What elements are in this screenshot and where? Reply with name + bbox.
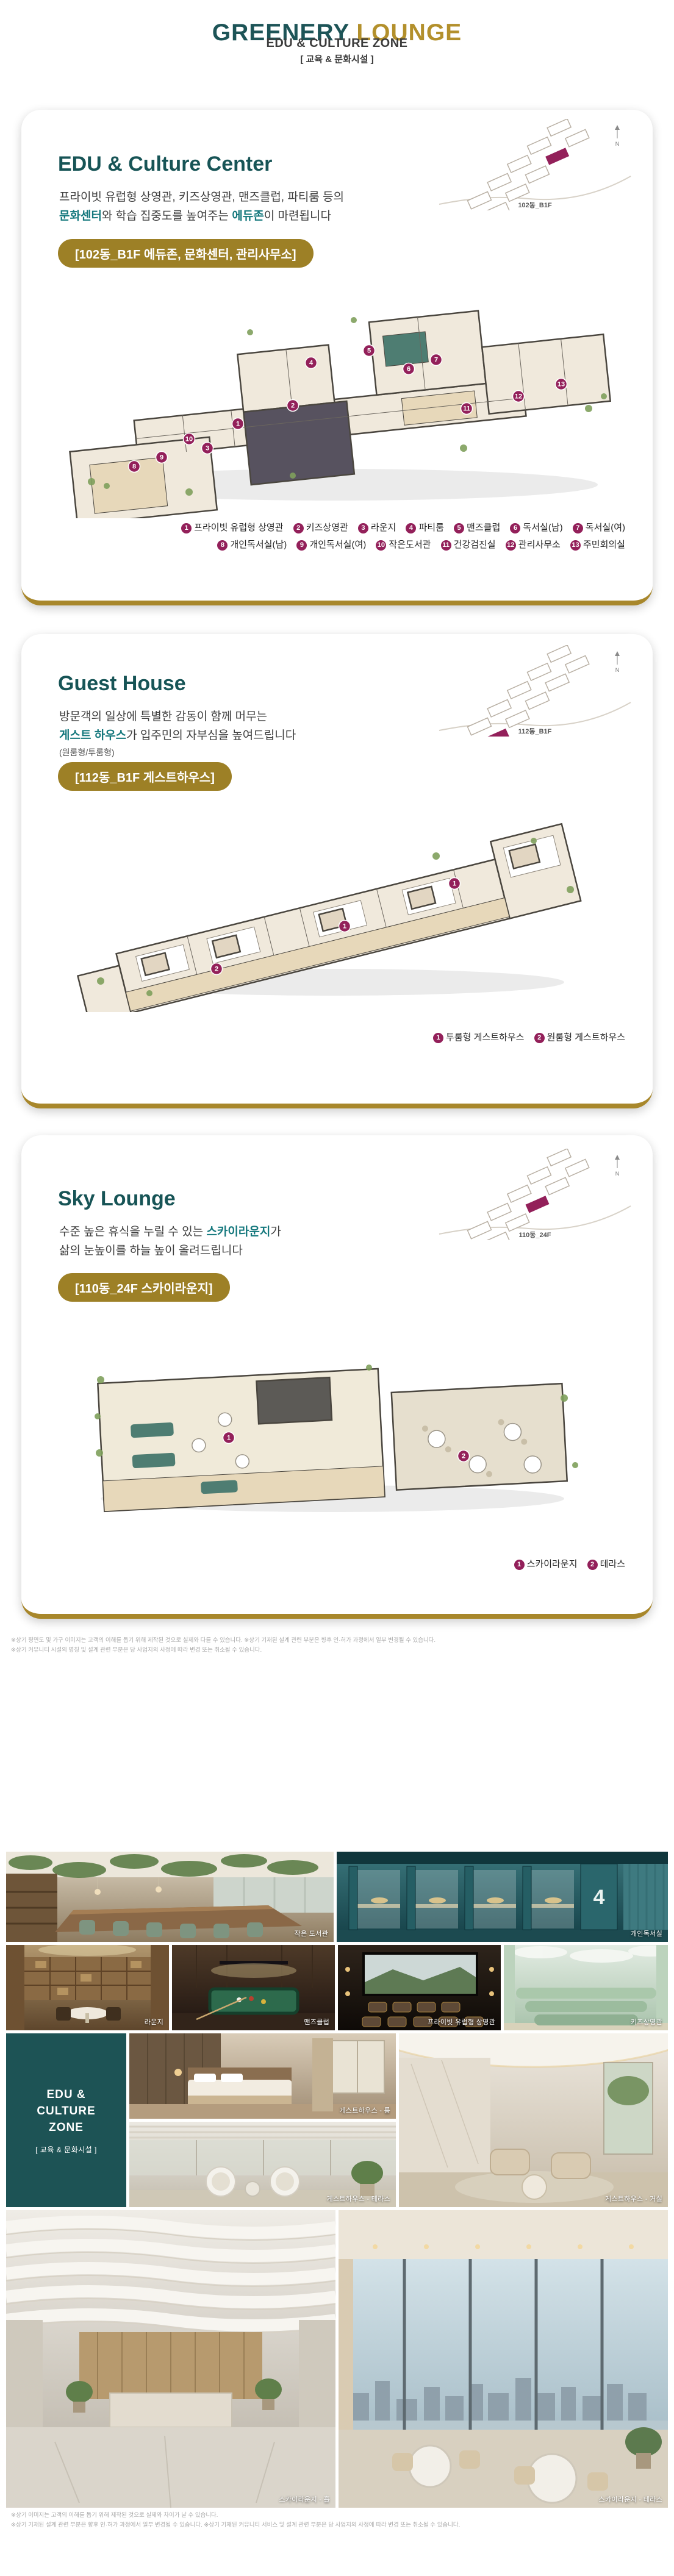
legend-label: 원룸형 게스트하우스 — [547, 1032, 625, 1043]
legend-number: 2 — [534, 1033, 545, 1043]
card-description: 방문객의 일상에 특별한 감동이 함께 머무는 게스트 하우스가 입주민의 자부… — [59, 707, 296, 745]
legend-number: 8 — [217, 540, 228, 551]
card-description: 수준 높은 휴식을 누릴 수 있는 스카이라운지가 삶의 눈높이를 하늘 높이 … — [59, 1222, 281, 1260]
photo-caption: 게스트하우스 - 룸 — [339, 2105, 390, 2115]
legend-label: 파티룸 — [418, 523, 443, 533]
svg-text:2: 2 — [291, 402, 295, 410]
minimap-label: 112동_B1F — [518, 727, 552, 735]
brand-line: EDU & — [46, 2086, 85, 2103]
desc-highlight: 에듀존 — [232, 210, 264, 223]
site-minimap: N 110동_24F — [434, 1149, 636, 1240]
photo-skylounge-terrace: 스카이라운지 - 테라스 — [339, 2210, 668, 2508]
desc-text: 이 마련됩니다 — [264, 210, 331, 223]
legend-number: 1 — [181, 523, 192, 533]
photo-caption: 작은 도서관 — [295, 1928, 328, 1938]
desc-highlight: 게스트 하우스 — [59, 729, 126, 742]
compass-label: N — [615, 141, 620, 147]
floor-plan-edu-culture: 1 2 3 4 5 6 7 8 9 10 11 12 13 — [37, 265, 637, 518]
compass-label: N — [615, 667, 620, 673]
legend-number: 4 — [406, 523, 416, 533]
svg-text:7: 7 — [434, 357, 438, 364]
svg-text:10: 10 — [185, 436, 193, 443]
legend-line: 1프라이빗 유럽형 상영관 2키즈상영관 3라운지 4파티룸 5맨즈클럽 6독서… — [174, 519, 625, 537]
plan-legend: 1스카이라운지 2테라스 — [507, 1556, 625, 1573]
highlighted-building — [545, 148, 569, 165]
svg-text:2: 2 — [462, 1453, 465, 1460]
location-badge: [110동_24F 스카이라운지] — [58, 1273, 230, 1302]
svg-text:1: 1 — [453, 880, 456, 888]
greenery-lounge-page: GREENERY LOUNGE EDU & CULTURE ZONE [ 교육 … — [0, 0, 674, 2576]
legend-number: 5 — [454, 523, 464, 533]
legend-label: 주민회의실 — [583, 540, 625, 550]
photo-private-cinema: 프라이빗 유럽형 상영관 — [338, 1945, 501, 2030]
legend-number: 9 — [296, 540, 307, 551]
legend-label: 스카이라운지 — [527, 1559, 578, 1569]
photo-guesthouse-terrace: 게스트하우스 - 테라스 — [129, 2122, 396, 2207]
legend-number: 7 — [573, 523, 583, 533]
disclaimer-top: ※상기 평면도 및 가구 이미지는 고객의 이해를 돕기 위해 제작된 것으로 … — [11, 1636, 665, 1655]
photo-caption: 맨즈클럽 — [304, 2017, 329, 2027]
photo-private-study-room: 4 개인독서실 — [337, 1852, 668, 1942]
photo-caption: 스카이라운지 - 테라스 — [599, 2494, 662, 2504]
svg-text:1: 1 — [343, 923, 346, 930]
disclaimer-line: ※상기 이미지는 고객의 이해를 돕기 위해 제작된 것으로 실제와 차이가 날… — [11, 2511, 665, 2521]
photo-caption: 스카이라운지 - 홀 — [279, 2494, 330, 2504]
legend-label: 관리사무소 — [518, 540, 561, 550]
floor-plan-sky-lounge: 1 2 — [64, 1312, 601, 1527]
card-note: (원룸형/투룸형) — [59, 746, 115, 758]
desc-text: 수준 높은 휴식을 누릴 수 있는 — [59, 1226, 206, 1238]
photo-caption: 개인독서실 — [631, 1928, 662, 1938]
photo-lounge: 라운지 — [6, 1945, 169, 2030]
location-badge: [112동_B1F 게스트하우스] — [58, 762, 232, 791]
plan-legend: 1프라이빗 유럽형 상영관 2키즈상영관 3라운지 4파티룸 5맨즈클럽 6독서… — [174, 519, 625, 554]
legend-number: 1 — [514, 1560, 525, 1570]
desc-text: 방문객의 일상에 특별한 감동이 함께 머무는 — [59, 710, 267, 723]
legend-number: 2 — [293, 523, 304, 533]
brand-line: CULTURE — [37, 2103, 95, 2119]
photo-guesthouse-living-room: 게스트하우스 - 거실 — [399, 2033, 668, 2207]
photo-mens-club: 맨즈클럽 — [172, 1945, 335, 2030]
legend-label: 테라스 — [600, 1559, 625, 1569]
card-title: Guest House — [58, 672, 186, 696]
desc-highlight: 스카이라운지 — [206, 1226, 270, 1238]
desc-text: 와 학습 집중도를 높여주는 — [102, 210, 232, 223]
desc-highlight: 문화센터 — [59, 210, 102, 223]
legend-label: 투룸형 게스트하우스 — [446, 1032, 524, 1043]
disclaimer-bottom: ※상기 이미지는 고객의 이해를 돕기 위해 제작된 것으로 실제와 차이가 날… — [11, 2511, 665, 2530]
card-title: Sky Lounge — [58, 1187, 176, 1211]
minimap-label: 102동_B1F — [518, 201, 552, 209]
legend-number: 10 — [376, 540, 386, 551]
plan-legend: 1투룸형 게스트하우스 2원룸형 게스트하우스 — [426, 1029, 625, 1046]
disclaimer-line: ※상기 기재된 설계 관련 부분은 향후 인·허가 과정에서 일부 변경될 수 … — [11, 2521, 665, 2530]
legend-label: 라운지 — [371, 523, 396, 533]
site-minimap: N 102동_B1F — [434, 119, 636, 210]
brand-subline: [ 교육 & 문화시설 ] — [35, 2144, 97, 2155]
legend-label: 개인독서실(여) — [309, 540, 366, 550]
svg-text:1: 1 — [227, 1435, 231, 1442]
svg-text:9: 9 — [160, 454, 163, 462]
photo-skylounge-hall: 스카이라운지 - 홀 — [6, 2210, 335, 2508]
highlighted-building — [486, 729, 509, 737]
photo-kids-cinema: 키즈상영관 — [504, 1945, 668, 2030]
brand-box: EDU & CULTURE ZONE [ 교육 & 문화시설 ] — [6, 2033, 126, 2207]
svg-text:3: 3 — [206, 445, 209, 452]
legend-number: 13 — [570, 540, 581, 551]
svg-text:13: 13 — [557, 381, 565, 388]
svg-text:2: 2 — [215, 966, 218, 973]
svg-text:1: 1 — [236, 421, 240, 428]
legend-label: 건강검진실 — [454, 540, 496, 550]
compass-icon — [615, 125, 620, 138]
legend-label: 맨즈클럽 — [467, 523, 500, 533]
photo-caption: 프라이빗 유럽형 상영관 — [428, 2017, 495, 2027]
legend-label: 프라이빗 유럽형 상영관 — [194, 523, 283, 533]
svg-text:11: 11 — [463, 405, 470, 413]
photo-caption: 게스트하우스 - 테라스 — [327, 2194, 390, 2203]
legend-label: 키즈상영관 — [306, 523, 348, 533]
brand-line: ZONE — [49, 2119, 84, 2136]
photo-caption: 게스트하우스 - 거실 — [605, 2194, 662, 2203]
legend-line: 8개인독서실(남) 9개인독서실(여) 10작은도서관 11건강검진실 12관리… — [174, 537, 625, 554]
legend-label: 독서실(남) — [523, 523, 562, 533]
legend-line: 1투룸형 게스트하우스 2원룸형 게스트하우스 — [426, 1029, 625, 1046]
legend-number: 12 — [506, 540, 516, 551]
site-minimap: N 112동_B1F — [434, 645, 636, 737]
card-sky-lounge: Sky Lounge 수준 높은 휴식을 누릴 수 있는 스카이라운지가 삶의 … — [21, 1135, 653, 1619]
legend-label: 작은도서관 — [389, 540, 431, 550]
photo-caption: 라운지 — [145, 2017, 163, 2027]
disclaimer-line: ※상기 평면도 및 가구 이미지는 고객의 이해를 돕기 위해 제작된 것으로 … — [11, 1636, 665, 1646]
card-edu-culture-center: EDU & Culture Center 프라이빗 유럽형 상영관, 키즈상영관… — [21, 110, 653, 605]
disclaimer-line: ※상기 커뮤니티 시설의 명칭 및 설계 관련 부분은 당 사업지의 사정에 따… — [11, 1646, 665, 1655]
legend-number: 11 — [441, 540, 451, 551]
svg-text:8: 8 — [132, 463, 136, 471]
legend-label: 독서실(여) — [586, 523, 625, 533]
desc-text: 삶의 눈높이를 하늘 높이 올려드립니다 — [59, 1244, 243, 1257]
legend-number: 3 — [358, 523, 368, 533]
card-description: 프라이빗 유럽형 상영관, 키즈상영관, 맨즈클럽, 파티룸 등의 문화센터와 … — [59, 188, 344, 226]
highlighted-building — [525, 1196, 549, 1213]
legend-number: 6 — [510, 523, 520, 533]
desc-text: 프라이빗 유럽형 상영관, 키즈상영관, 맨즈클럽, 파티룸 등의 — [59, 191, 344, 204]
minimap-label: 110동_24F — [519, 1231, 551, 1239]
legend-line: 1스카이라운지 2테라스 — [507, 1556, 625, 1573]
svg-text:12: 12 — [515, 393, 522, 401]
desc-text: 가 — [270, 1226, 281, 1238]
compass-icon — [615, 1155, 620, 1168]
card-title: EDU & Culture Center — [58, 152, 272, 176]
card-guest-house: Guest House 방문객의 일상에 특별한 감동이 함께 머무는 게스트 … — [21, 634, 653, 1108]
legend-number: 2 — [587, 1560, 598, 1570]
legend-number: 1 — [433, 1033, 443, 1043]
floor-plan-guest-house: 2 1 1 — [58, 797, 607, 1012]
compass-label: N — [615, 1171, 620, 1177]
photo-small-library: 작은 도서관 — [6, 1852, 334, 1942]
desc-text: 가 입주민의 자부심을 높여드립니다 — [126, 729, 296, 742]
svg-text:6: 6 — [407, 366, 410, 373]
svg-text:4: 4 — [309, 360, 314, 367]
page-subtitle: EDU & CULTURE ZONE — [0, 37, 674, 51]
cubicle-number: 4 — [593, 1886, 605, 1909]
photo-caption: 키즈상영관 — [631, 2017, 662, 2027]
photo-guesthouse-room: 게스트하우스 - 룸 — [129, 2033, 396, 2119]
svg-text:5: 5 — [367, 348, 371, 355]
page-subtitle-korean: [ 교육 & 문화시설 ] — [0, 52, 674, 65]
legend-label: 개인독서실(남) — [230, 540, 287, 550]
location-badge: [102동_B1F 에듀존, 문화센터, 관리사무소] — [58, 239, 314, 268]
compass-icon — [615, 651, 620, 665]
